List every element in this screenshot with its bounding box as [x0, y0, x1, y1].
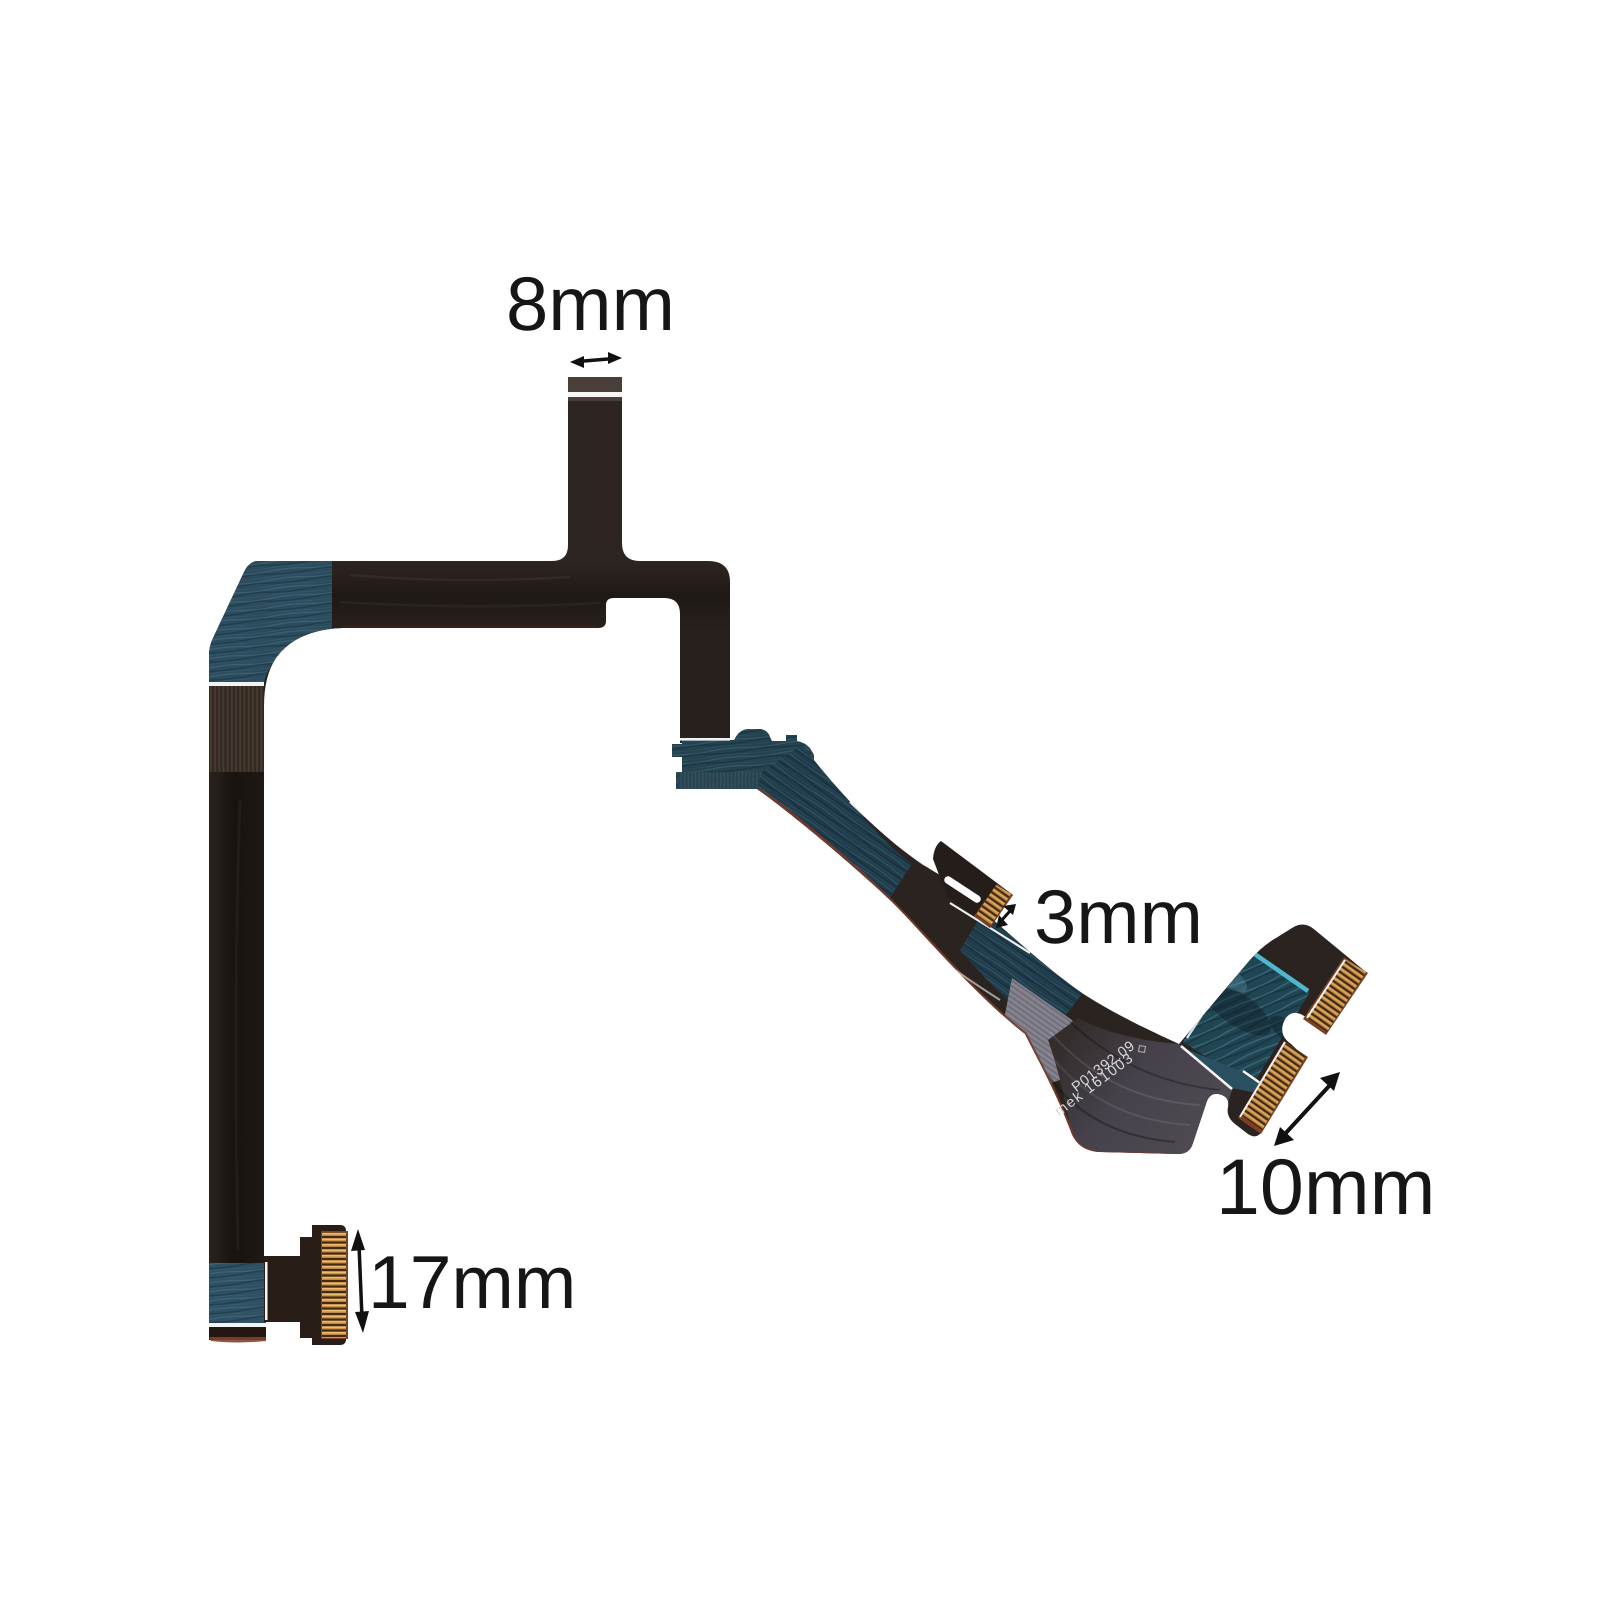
svg-text:10mm: 10mm [1216, 1142, 1436, 1231]
svg-text:8mm: 8mm [506, 262, 675, 347]
svg-text:3mm: 3mm [1034, 875, 1203, 960]
svg-text:17mm: 17mm [368, 1240, 576, 1324]
